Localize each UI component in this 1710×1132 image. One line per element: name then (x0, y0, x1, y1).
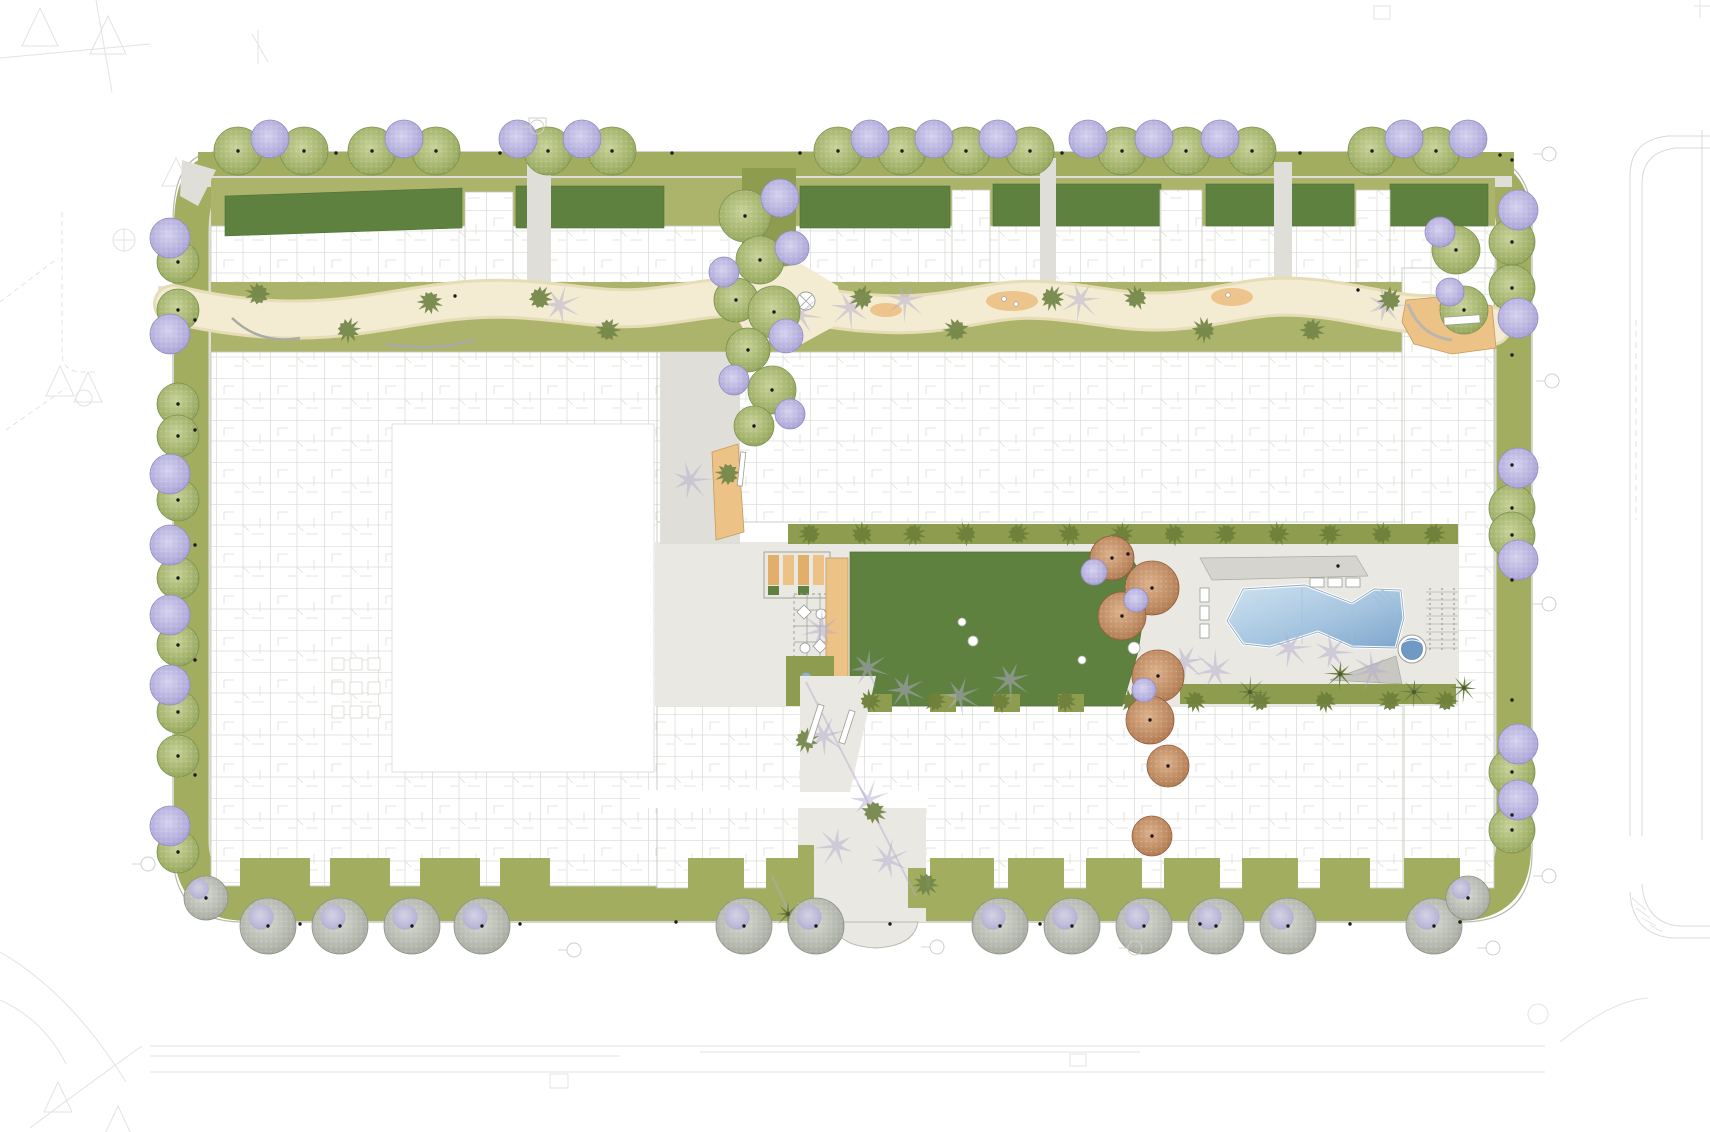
gray-tree (1260, 898, 1316, 954)
jacaranda-tree (709, 257, 739, 287)
jacaranda-tree (719, 365, 749, 395)
jacaranda-tree (150, 806, 190, 846)
gray-tree (1044, 898, 1100, 954)
gray-tree (788, 898, 844, 954)
rust-tree (1132, 816, 1172, 856)
green-tree (157, 415, 199, 457)
jacaranda-tree (1425, 217, 1455, 247)
jacaranda-tree (499, 120, 537, 158)
gray-tree (1188, 898, 1244, 954)
rust-tree (1147, 745, 1189, 787)
jacaranda-tree (769, 319, 803, 353)
jacaranda-tree (1201, 120, 1239, 158)
jacaranda-tree (1081, 559, 1107, 585)
gray-tree (384, 898, 440, 954)
site-plan-drawing (0, 0, 1710, 1132)
green-tree (734, 406, 774, 446)
gray-tree (312, 898, 368, 954)
jacaranda-tree (1385, 120, 1423, 158)
gray-tree (1116, 898, 1172, 954)
jacaranda-tree (1132, 678, 1156, 702)
jacaranda-tree (1135, 120, 1173, 158)
gray-tree (972, 898, 1028, 954)
jacaranda-tree (1436, 278, 1464, 306)
jacaranda-tree (1069, 120, 1107, 158)
jacaranda-tree (150, 665, 190, 705)
jacaranda-tree (761, 179, 799, 217)
jacaranda-tree (1498, 780, 1538, 820)
jacaranda-tree (150, 595, 190, 635)
jacaranda-tree (150, 314, 190, 354)
gray-tree (1446, 876, 1490, 920)
jacaranda-tree (1498, 298, 1538, 338)
jacaranda-tree (385, 120, 423, 158)
green-tree (157, 735, 199, 777)
jacaranda-tree (563, 120, 601, 158)
jacaranda-tree (1498, 540, 1538, 580)
jacaranda-tree (979, 120, 1017, 158)
jacaranda-tree (1124, 588, 1148, 612)
site-plan-page (0, 0, 1710, 1132)
jacaranda-tree (1498, 448, 1538, 488)
jacaranda-tree (775, 399, 805, 429)
jacaranda-tree (150, 218, 190, 258)
jacaranda-tree (251, 120, 289, 158)
gray-tree (454, 898, 510, 954)
gray-tree (240, 898, 296, 954)
jacaranda-tree (150, 454, 190, 494)
rust-tree (1126, 696, 1174, 744)
jacaranda-tree (915, 120, 953, 158)
gray-tree (716, 898, 772, 954)
gray-tree (184, 876, 228, 920)
jacaranda-tree (1449, 120, 1487, 158)
jacaranda-tree (1498, 724, 1538, 764)
jacaranda-tree (775, 231, 809, 265)
jacaranda-tree (851, 120, 889, 158)
jacaranda-tree (150, 525, 190, 565)
jacaranda-tree (1498, 190, 1538, 230)
